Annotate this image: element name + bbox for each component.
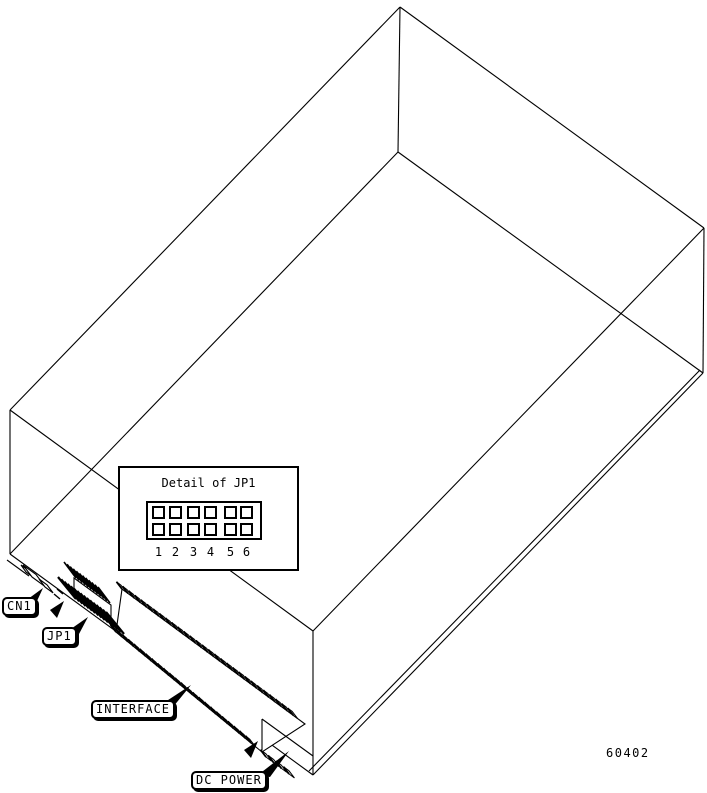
jp1-jumper-block bbox=[58, 562, 124, 634]
pin-number-label: 1 bbox=[155, 545, 162, 559]
jumper-pin-square bbox=[169, 523, 182, 536]
jumper-pin-square bbox=[169, 506, 182, 519]
jumper-pin-square bbox=[187, 523, 200, 536]
jumper-pin-square bbox=[240, 523, 253, 536]
jp1-detail-inset: Detail of JP1 123456 bbox=[118, 466, 299, 571]
callout-jp1: JP1 bbox=[42, 627, 77, 646]
figure-part-number: 60402 bbox=[606, 746, 650, 760]
cn1-connector bbox=[21, 565, 63, 599]
pin-number-label: 6 bbox=[243, 545, 250, 559]
pin-number-label: 4 bbox=[207, 545, 214, 559]
callout-interface: INTERFACE bbox=[91, 700, 175, 719]
jumper-pin-square bbox=[204, 523, 217, 536]
jumper-pin-square bbox=[204, 506, 217, 519]
detail-title: Detail of JP1 bbox=[120, 476, 297, 490]
chassis-wireframe bbox=[7, 7, 704, 775]
jumper-pin-square bbox=[224, 506, 237, 519]
pin-number-label: 2 bbox=[172, 545, 179, 559]
pin-number-label: 3 bbox=[190, 545, 197, 559]
jp1-pin-grid bbox=[146, 501, 262, 540]
pin-number-label: 5 bbox=[227, 545, 234, 559]
hardware-isometric-figure: Detail of JP1 123456 CN1 JP1 INTERFACE D… bbox=[0, 0, 707, 793]
jumper-pin-square bbox=[152, 506, 165, 519]
isometric-line-art bbox=[0, 0, 707, 793]
jumper-pin-square bbox=[224, 523, 237, 536]
interface-connector bbox=[111, 582, 306, 752]
jumper-pin-square bbox=[240, 506, 253, 519]
jumper-pin-square bbox=[152, 523, 165, 536]
callout-cn1: CN1 bbox=[2, 597, 37, 616]
callout-dc-power: DC POWER bbox=[191, 771, 267, 790]
jumper-pin-square bbox=[187, 506, 200, 519]
